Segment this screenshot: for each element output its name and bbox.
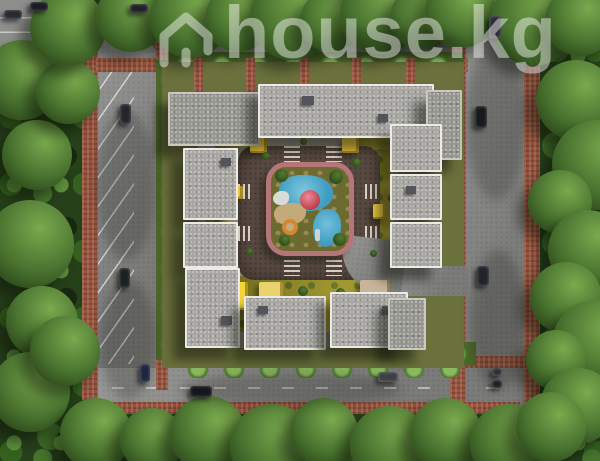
building-bottom-right-corner <box>388 298 426 350</box>
tree <box>0 200 74 288</box>
tree <box>36 60 100 124</box>
building-right-1 <box>390 124 442 172</box>
car <box>4 10 22 19</box>
building-left-2 <box>183 222 238 268</box>
car <box>492 380 502 388</box>
bush <box>262 152 270 160</box>
car <box>119 268 130 288</box>
tree <box>290 398 358 461</box>
car <box>475 106 487 128</box>
tree <box>30 316 100 386</box>
tree <box>516 392 586 461</box>
watermark-text: house.kg <box>224 0 557 72</box>
car <box>140 364 150 382</box>
tree-shadow <box>96 110 156 260</box>
building-left-3 <box>185 268 240 348</box>
building-bottom-1 <box>244 296 326 350</box>
playground-tree <box>329 170 343 184</box>
aerial-site-plan-rendering: house.kg <box>0 0 600 461</box>
carousel-orange <box>282 219 298 235</box>
playground-tree <box>275 169 288 182</box>
car <box>378 372 398 382</box>
car <box>30 2 48 11</box>
playground-tree <box>333 233 346 246</box>
building-right-2 <box>390 174 442 220</box>
bush <box>298 286 308 296</box>
tree <box>2 120 72 190</box>
tree-shadow <box>180 372 400 406</box>
car <box>477 266 489 286</box>
playground <box>266 162 354 256</box>
crosswalk <box>238 226 253 241</box>
slide-dome-red <box>300 190 320 210</box>
bush <box>300 138 307 145</box>
bush <box>370 250 377 257</box>
building-left-1 <box>183 148 238 220</box>
car <box>120 104 131 124</box>
canopy <box>342 138 359 153</box>
bush <box>352 158 361 167</box>
bush <box>246 248 253 255</box>
crosswalk <box>326 146 342 162</box>
car <box>190 386 212 397</box>
shade-sail <box>273 191 289 205</box>
building-top-left-wing <box>168 92 260 146</box>
house-logo-icon <box>152 6 216 68</box>
building-right-3 <box>390 222 442 268</box>
crosswalk <box>284 146 300 162</box>
car <box>492 368 502 376</box>
tree-shadow <box>100 280 156 400</box>
crosswalk <box>284 260 300 276</box>
watermark: house.kg <box>128 0 600 74</box>
crosswalk <box>326 260 342 276</box>
canopy <box>373 204 386 219</box>
playground-tree <box>279 235 290 246</box>
crosswalk <box>365 184 380 199</box>
play-equipment-white <box>315 229 320 241</box>
